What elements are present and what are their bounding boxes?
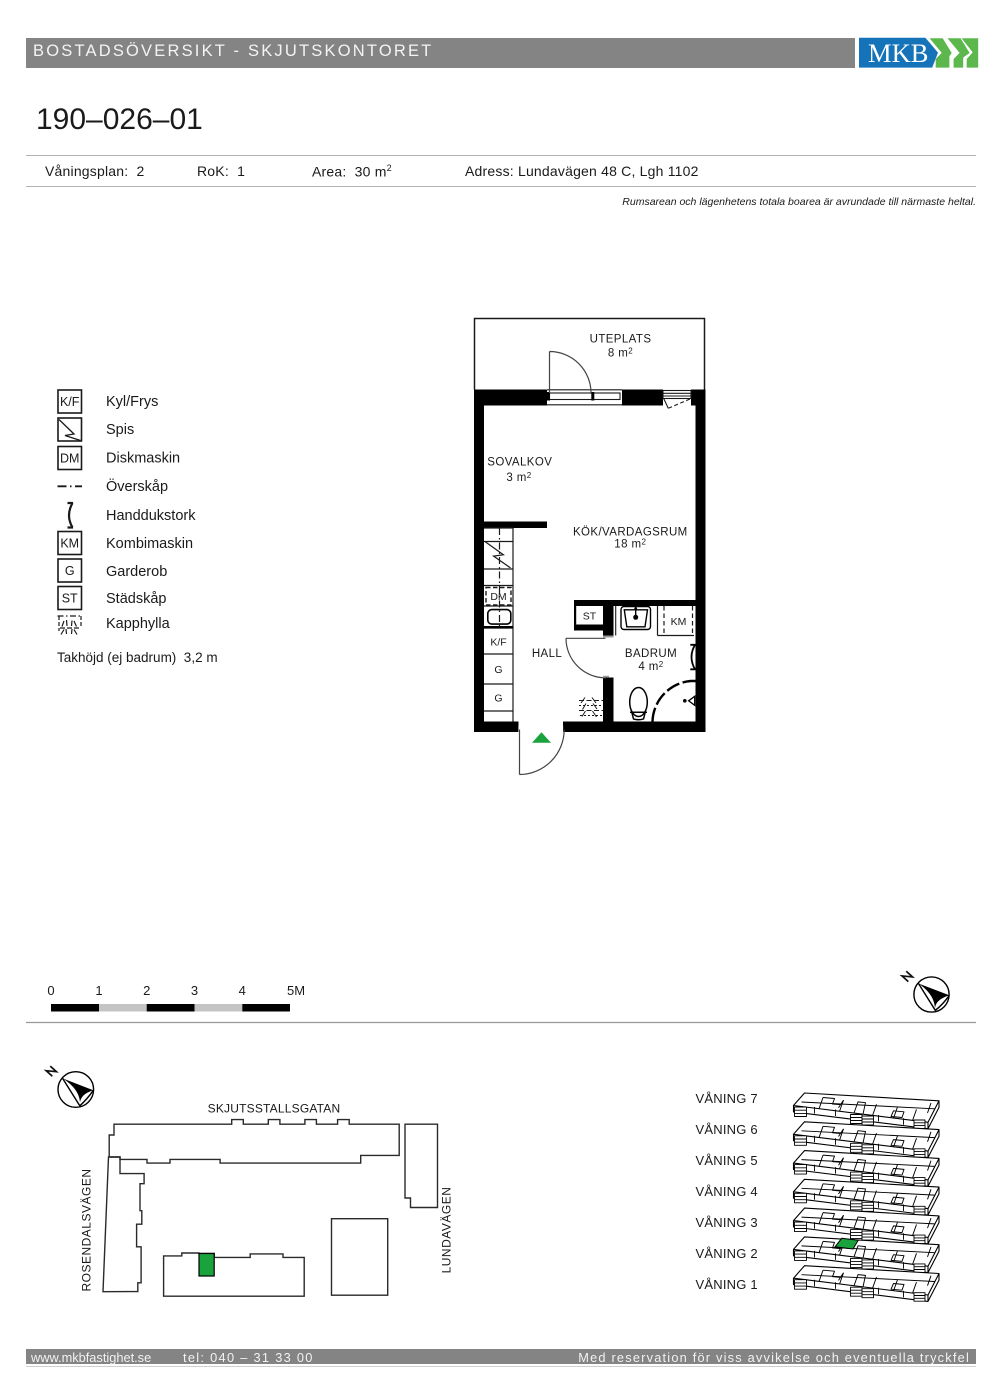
svg-text:Kombimaskin: Kombimaskin — [106, 536, 193, 552]
svg-text:Handdukstork: Handdukstork — [106, 508, 196, 524]
svg-text:Spis: Spis — [106, 422, 134, 438]
svg-text:4 m2: 4 m2 — [638, 660, 663, 673]
svg-text:VÅNING 5: VÅNING 5 — [696, 1153, 758, 1168]
svg-text:18 m2: 18 m2 — [614, 538, 646, 551]
svg-text:Överskåp: Överskåp — [106, 477, 168, 495]
svg-text:KM: KM — [60, 537, 79, 551]
svg-text:ROSENDALSVÄGEN: ROSENDALSVÄGEN — [80, 1168, 94, 1291]
svg-text:Diskmaskin: Diskmaskin — [106, 451, 180, 467]
svg-text:VÅNING 6: VÅNING 6 — [696, 1122, 758, 1137]
svg-text:DM: DM — [60, 452, 79, 466]
svg-text:2: 2 — [143, 983, 150, 998]
svg-text:K/F: K/F — [60, 395, 80, 409]
svg-text:ST: ST — [62, 592, 78, 606]
svg-text:VÅNING 7: VÅNING 7 — [696, 1091, 758, 1106]
svg-text:KÖK/VARDAGSRUM: KÖK/VARDAGSRUM — [573, 527, 688, 539]
svg-text:0: 0 — [47, 983, 54, 998]
svg-text:UTEPLATS: UTEPLATS — [590, 333, 652, 345]
svg-text:Kapphylla: Kapphylla — [106, 616, 171, 632]
svg-text:Garderob: Garderob — [106, 564, 167, 580]
svg-text:3 m2: 3 m2 — [506, 471, 531, 484]
svg-text:G: G — [65, 564, 75, 578]
svg-text:G: G — [494, 693, 502, 705]
svg-text:LUNDAVÄGEN: LUNDAVÄGEN — [440, 1187, 454, 1274]
svg-text:K/F: K/F — [490, 637, 506, 649]
svg-text:3: 3 — [191, 983, 198, 998]
svg-text:SKJUTSSTALLSGATAN: SKJUTSSTALLSGATAN — [208, 1102, 341, 1116]
svg-text:Städskåp: Städskåp — [106, 591, 166, 607]
svg-text:KM: KM — [671, 616, 687, 628]
svg-text:SOVALKOV: SOVALKOV — [487, 457, 552, 469]
svg-text:BADRUM: BADRUM — [625, 648, 677, 660]
svg-text:VÅNING 3: VÅNING 3 — [696, 1215, 758, 1230]
svg-text:VÅNING 4: VÅNING 4 — [696, 1184, 758, 1199]
svg-text:VÅNING 2: VÅNING 2 — [696, 1246, 758, 1261]
svg-text:Takhöjd (ej badrum) 3,2 m: Takhöjd (ej badrum) 3,2 m — [57, 650, 218, 665]
svg-text:DM: DM — [490, 591, 506, 603]
svg-text:G: G — [494, 664, 502, 676]
svg-text:1: 1 — [95, 983, 102, 998]
svg-text:Kyl/Frys: Kyl/Frys — [106, 394, 158, 410]
svg-text:VÅNING 1: VÅNING 1 — [696, 1277, 758, 1292]
svg-text:4: 4 — [239, 983, 246, 998]
svg-text:5M: 5M — [287, 983, 305, 998]
svg-text:HALL: HALL — [532, 648, 563, 660]
svg-text:ST: ST — [583, 611, 597, 623]
svg-text:8 m2: 8 m2 — [608, 347, 633, 360]
